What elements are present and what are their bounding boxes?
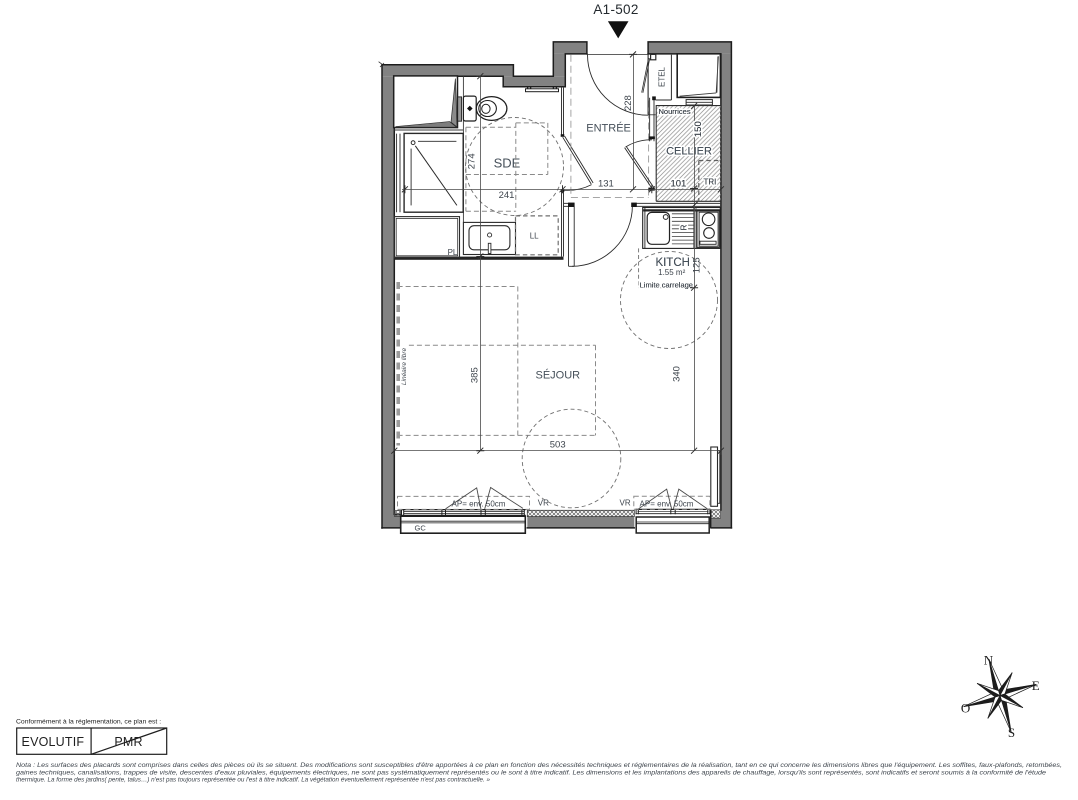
svg-text:TRI: TRI: [703, 177, 716, 186]
svg-text:N: N: [984, 653, 994, 668]
svg-text:125: 125: [692, 257, 703, 273]
svg-text:VR: VR: [538, 499, 549, 508]
svg-text:LL: LL: [530, 232, 539, 241]
svg-text:VR: VR: [620, 499, 631, 508]
svg-text:A1-502: A1-502: [593, 2, 638, 17]
svg-text:PMR: PMR: [114, 735, 142, 749]
svg-text:Linéaire libre: Linéaire libre: [401, 348, 408, 386]
svg-text:241: 241: [499, 190, 515, 201]
svg-text:131: 131: [598, 179, 614, 190]
svg-text:Conformément à la réglementati: Conformément à la réglementation, ce pla…: [16, 719, 161, 726]
svg-text:228: 228: [623, 95, 634, 111]
svg-text:150: 150: [693, 121, 704, 137]
svg-text:ETEL: ETEL: [658, 66, 667, 87]
svg-text:ENTRÉE: ENTRÉE: [586, 122, 631, 135]
svg-text:R: R: [680, 224, 689, 230]
svg-text:GC: GC: [415, 524, 427, 533]
svg-text:101: 101: [670, 179, 686, 190]
svg-text:S: S: [1008, 725, 1015, 740]
svg-text:Limite carrelage: Limite carrelage: [640, 281, 693, 290]
svg-text:503: 503: [550, 440, 566, 451]
svg-text:PL: PL: [448, 248, 458, 257]
svg-text:gaines techniques, canalisatio: gaines techniques, canalisations, trappe…: [16, 769, 1047, 776]
svg-text:274: 274: [466, 153, 477, 169]
svg-text:E: E: [1032, 678, 1040, 693]
svg-text:O: O: [961, 700, 970, 715]
svg-text:thermique. La forme des jardin: thermique. La forme des jardins( pente, …: [16, 777, 491, 784]
svg-text:SÉJOUR: SÉJOUR: [535, 369, 580, 382]
svg-text:AP= env. 50cm: AP= env. 50cm: [452, 499, 506, 508]
svg-text:EVOLUTIF: EVOLUTIF: [22, 735, 85, 749]
svg-text:SDE: SDE: [494, 156, 521, 171]
svg-text:Nota : Les surfaces des placar: Nota : Les surfaces des placards sont co…: [16, 762, 1062, 769]
svg-text:1.55 m²: 1.55 m²: [658, 268, 685, 277]
svg-text:340: 340: [672, 366, 683, 382]
svg-text:385: 385: [469, 367, 480, 383]
svg-text:AP= env. 50cm: AP= env. 50cm: [640, 499, 694, 508]
svg-text:Nourrices: Nourrices: [659, 107, 691, 116]
svg-text:CELLIER: CELLIER: [666, 146, 712, 158]
